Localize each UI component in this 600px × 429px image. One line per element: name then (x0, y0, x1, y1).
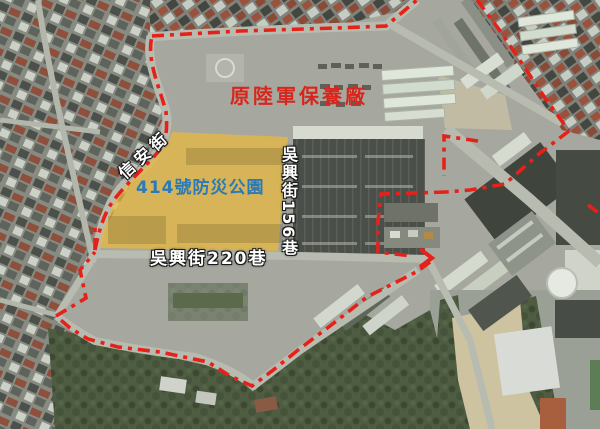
aerial-map: 原陸軍保養廠 414號防災公園 信安街 吳興街156巷 吳興街220巷 (0, 0, 600, 429)
label-wuxing-lane-220: 吳興街220巷 (150, 251, 268, 268)
campus-area (430, 268, 600, 429)
label-wuxing-lane-156: 吳興街156巷 (280, 146, 296, 257)
satellite-image (0, 0, 600, 429)
label-former-army-depot: 原陸軍保養廠 (230, 86, 368, 106)
label-park-414: 414號防災公園 (136, 180, 265, 197)
